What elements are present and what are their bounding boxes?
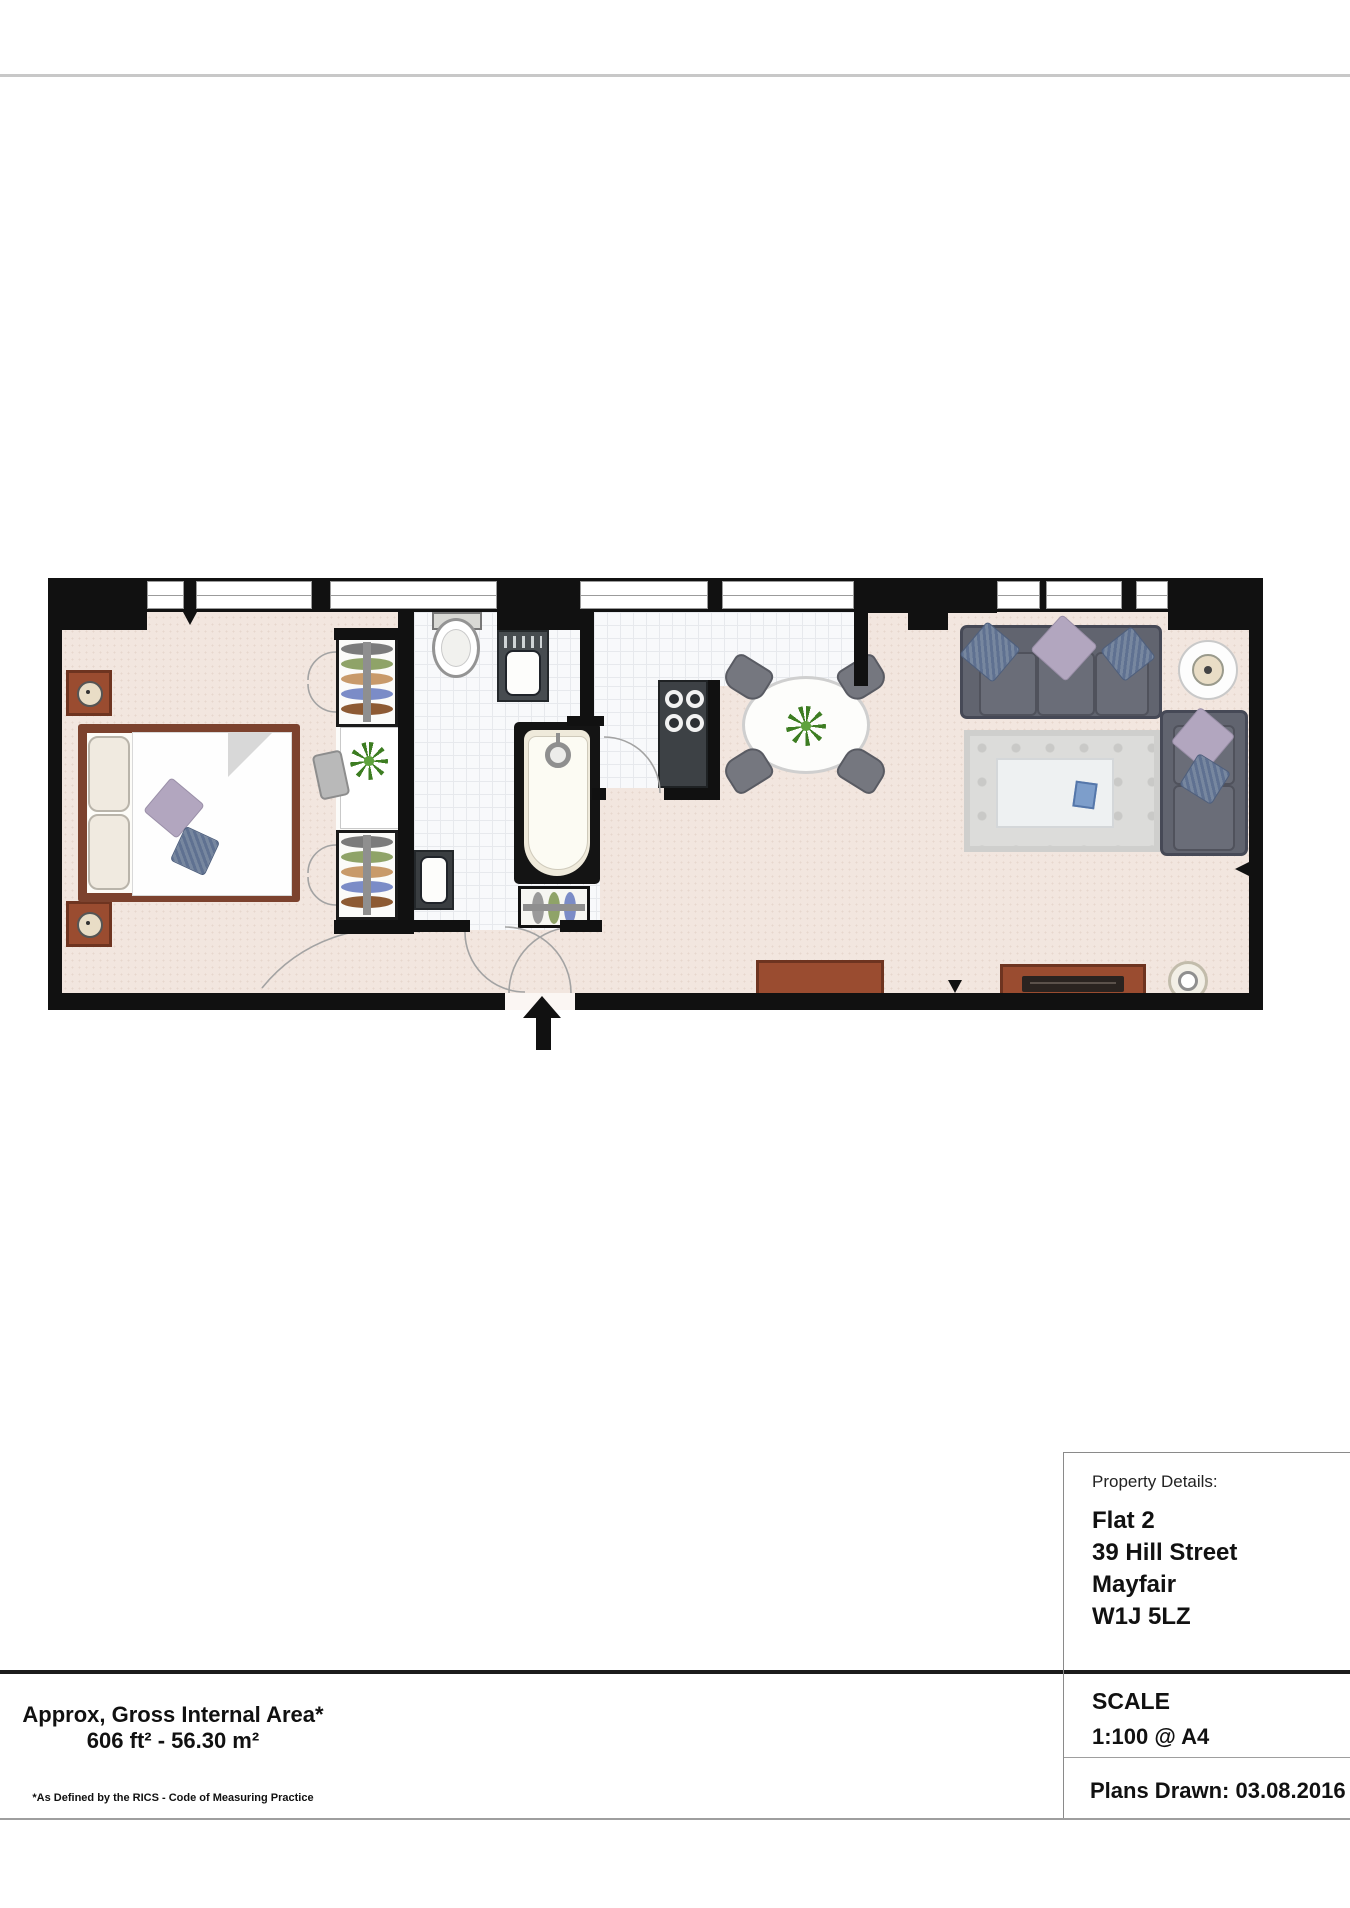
wall-pier: [908, 613, 948, 630]
toilet: [432, 618, 480, 678]
divider-thick: [0, 1670, 1350, 1674]
wall-kitchen-living: [854, 613, 868, 686]
floor-plan: [0, 0, 1350, 1100]
wall-pier: [497, 578, 580, 630]
divider-bottom: [0, 1818, 1350, 1820]
wall-kitchen-right: [708, 680, 720, 794]
plans-drawn: Plans Drawn: 03.08.2016: [1090, 1778, 1346, 1804]
wall-kitchen-bottom: [664, 788, 720, 800]
side-table-dot: [1204, 666, 1212, 674]
wardrobe-top: [336, 637, 398, 727]
property-details-label: Property Details:: [1092, 1472, 1218, 1492]
wall-bath-bottom: [560, 920, 602, 932]
property-box-left: [1063, 1452, 1064, 1818]
duvet-fold: [228, 733, 272, 777]
wall-pier: [48, 578, 147, 630]
hand-basin: [420, 856, 448, 904]
wall-wardrobe-bottom: [334, 920, 414, 934]
scale-value: 1:100 @ A4: [1092, 1724, 1209, 1750]
tv-icon: [1022, 976, 1124, 992]
vanity-grille: [504, 636, 542, 648]
plant-icon: [786, 706, 826, 746]
bathroom-sink: [505, 650, 541, 696]
window: [722, 581, 854, 609]
scale-divider: [1064, 1757, 1350, 1758]
window: [330, 581, 497, 609]
wardrobe-bottom: [336, 830, 398, 920]
wall-bottom: [48, 993, 505, 1010]
entrance-arrow-stem: [536, 1016, 551, 1050]
bed-pillow: [88, 736, 130, 812]
window: [147, 581, 184, 609]
bed-pillow: [88, 814, 130, 890]
wall-wardrobe-bath: [398, 612, 414, 932]
window: [580, 581, 708, 609]
stove-unit: [658, 680, 708, 788]
plant-icon: [350, 742, 388, 780]
wall-tub-head: [567, 716, 604, 726]
window: [997, 581, 1040, 609]
lamp-icon: [77, 681, 103, 707]
wall-bottom: [575, 993, 1263, 1010]
wall-wardrobe-top: [334, 628, 400, 640]
book-icon: [1072, 781, 1097, 810]
scale-heading: SCALE: [1092, 1688, 1170, 1715]
window: [1136, 581, 1168, 609]
area-line1: Approx, Gross Internal Area*: [0, 1702, 346, 1728]
property-address: Flat 2 39 Hill Street Mayfair W1J 5LZ: [1092, 1505, 1237, 1633]
wall-kitchen-bottom: [592, 788, 606, 800]
lamp-icon: [77, 912, 103, 938]
floorplan-page: Property Details: Flat 2 39 Hill Street …: [0, 0, 1350, 1908]
wall-bath-bottom: [414, 920, 470, 932]
wall-bath-kitchen: [580, 612, 594, 724]
speaker-inner: [1178, 971, 1198, 991]
wall-marker-icon: [183, 612, 197, 625]
property-box-top: [1063, 1452, 1350, 1453]
wall-right: [1249, 578, 1263, 1010]
address-line: 39 Hill Street: [1092, 1537, 1237, 1569]
entrance-arrow-icon: [523, 996, 561, 1018]
wall-marker-icon: [948, 980, 962, 993]
area-footnote: *As Defined by the RICS - Code of Measur…: [0, 1792, 346, 1804]
address-line: Flat 2: [1092, 1505, 1237, 1537]
area-summary: Approx, Gross Internal Area* 606 ft² - 5…: [0, 1702, 346, 1754]
wall-pier: [854, 578, 997, 613]
wall-left: [48, 578, 62, 1010]
bathtub: [514, 722, 600, 884]
window: [196, 581, 312, 609]
area-line2: 606 ft² - 56.30 m²: [0, 1728, 346, 1754]
window: [1046, 581, 1122, 609]
address-line: W1J 5LZ: [1092, 1601, 1237, 1633]
address-line: Mayfair: [1092, 1569, 1237, 1601]
wall-marker-icon: [1235, 862, 1249, 876]
